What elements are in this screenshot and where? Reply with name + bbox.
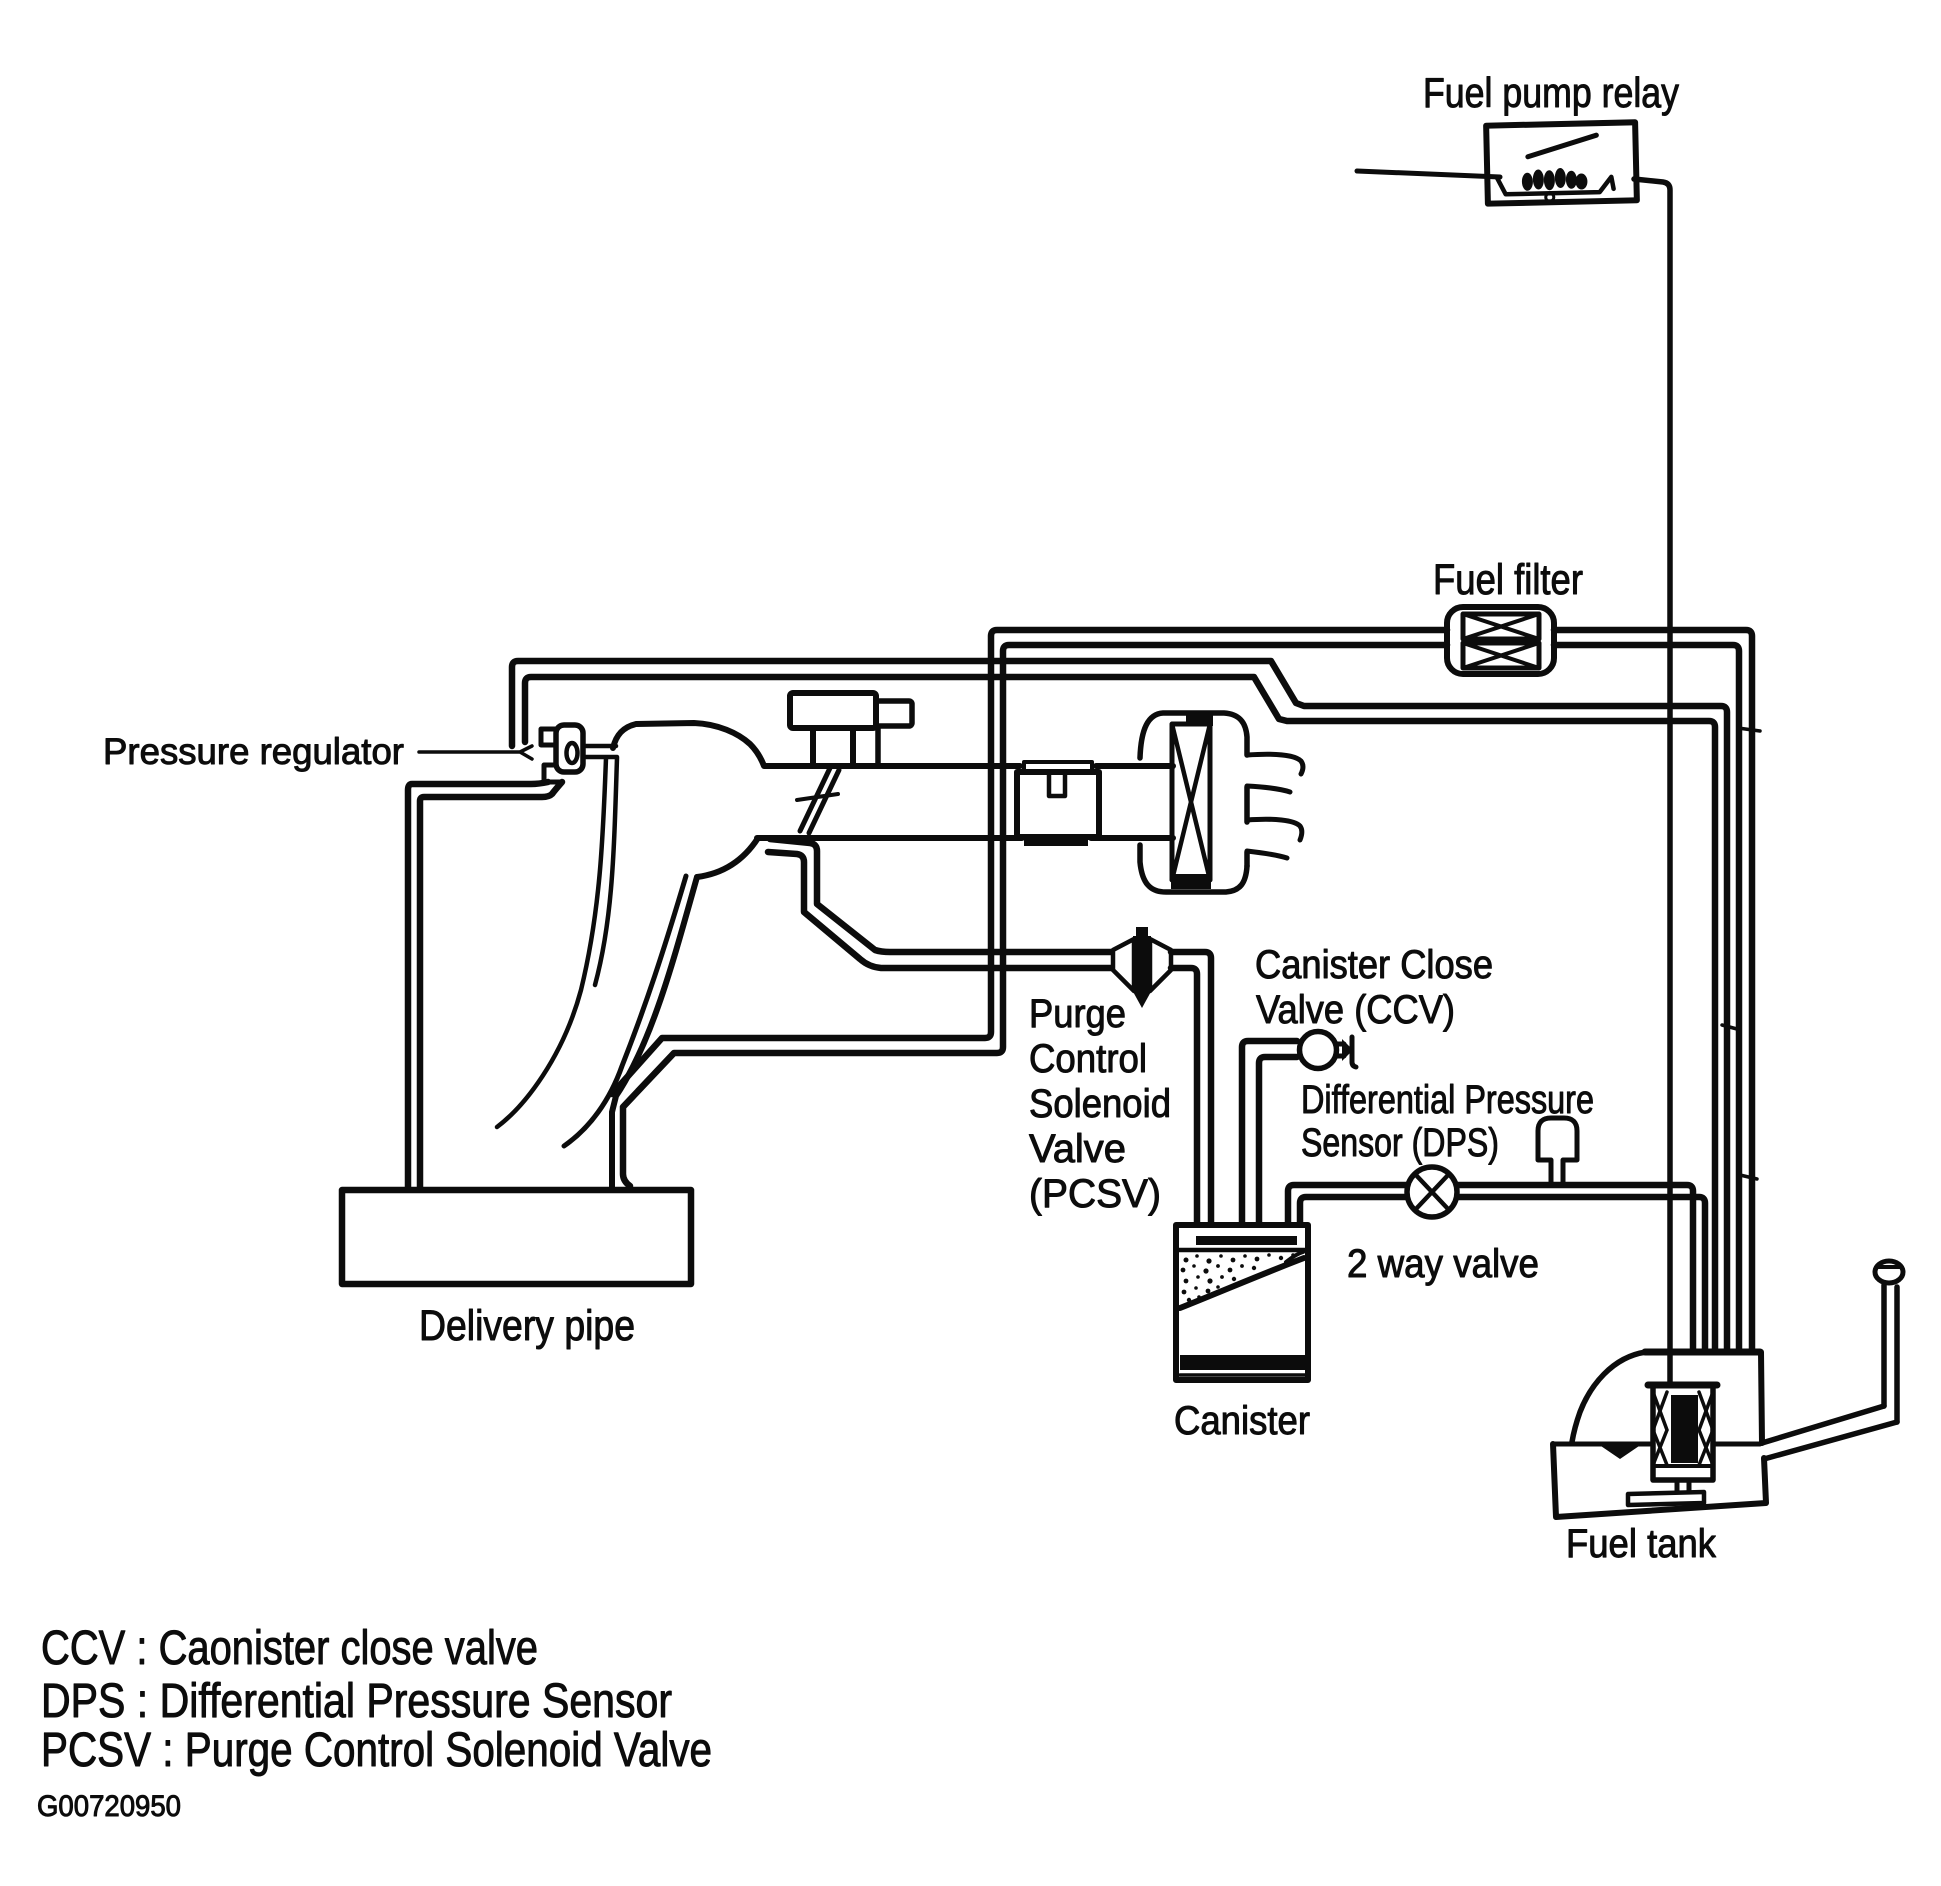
svg-text:DPS : Differential Pressure Se: DPS : Differential Pressure Sensor	[41, 1675, 672, 1728]
svg-text:Valve (CCV): Valve (CCV)	[1256, 988, 1455, 1032]
svg-text:Fuel filter: Fuel filter	[1433, 556, 1583, 604]
svg-text:Sensor (DPS): Sensor (DPS)	[1301, 1121, 1499, 1165]
svg-text:2 way valve: 2 way valve	[1347, 1242, 1539, 1286]
svg-text:(PCSV): (PCSV)	[1029, 1172, 1161, 1216]
svg-text:CCV : Caonister close valve: CCV : Caonister close valve	[41, 1622, 538, 1675]
svg-text:Control: Control	[1029, 1037, 1147, 1081]
svg-text:Valve: Valve	[1029, 1127, 1126, 1171]
svg-text:Canister: Canister	[1174, 1399, 1310, 1443]
svg-text:PCSV : Purge Control Solenoid: PCSV : Purge Control Solenoid Valve	[41, 1724, 712, 1777]
svg-text:G00720950: G00720950	[37, 1790, 181, 1823]
svg-text:Pressure regulator: Pressure regulator	[103, 731, 404, 772]
svg-text:Fuel tank: Fuel tank	[1566, 1522, 1717, 1566]
svg-text:Canister Close: Canister Close	[1255, 943, 1493, 987]
svg-text:Fuel pump relay: Fuel pump relay	[1423, 69, 1679, 116]
svg-text:Solenoid: Solenoid	[1029, 1082, 1171, 1126]
svg-text:Differential Pressure: Differential Pressure	[1301, 1078, 1594, 1122]
svg-text:Delivery pipe: Delivery pipe	[419, 1302, 635, 1350]
svg-text:Purge: Purge	[1029, 992, 1126, 1036]
